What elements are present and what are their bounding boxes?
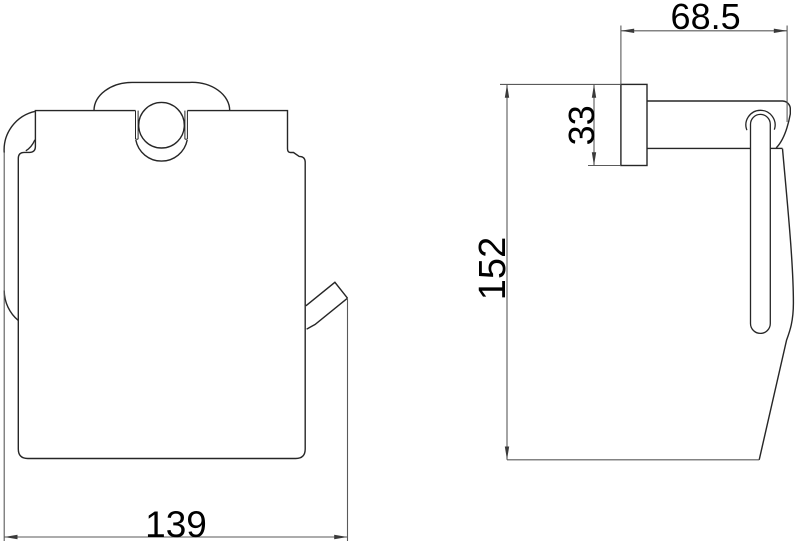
svg-text:68.5: 68.5	[671, 0, 741, 37]
svg-text:139: 139	[145, 504, 207, 542]
svg-text:33: 33	[561, 105, 602, 145]
svg-text:152: 152	[472, 237, 514, 300]
